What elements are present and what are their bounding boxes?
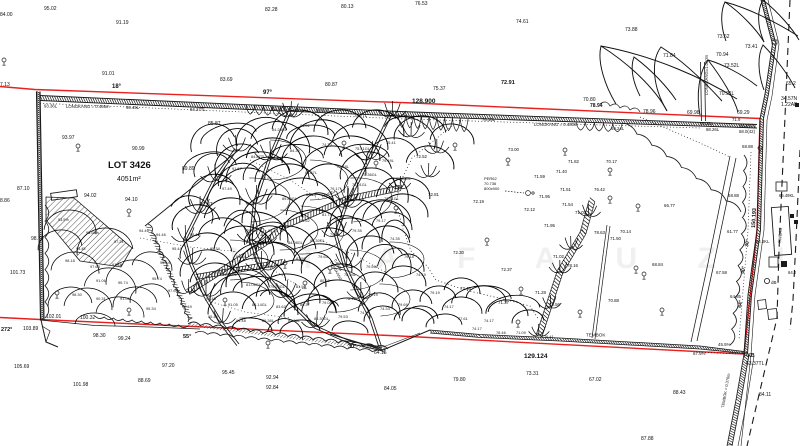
- svg-text:84.14GL: 84.14GL: [252, 302, 268, 307]
- svg-text:95.74: 95.74: [152, 276, 163, 281]
- svg-text:87.10: 87.10: [17, 186, 30, 192]
- svg-text:68.0(42): 68.0(42): [739, 129, 756, 134]
- svg-text:73.41: 73.41: [745, 44, 758, 50]
- svg-text:71.54: 71.54: [562, 202, 574, 207]
- svg-text:91.48: 91.48: [236, 318, 246, 323]
- svg-text:83.62: 83.62: [276, 304, 286, 309]
- svg-text:TEMBOK: TEMBOK: [586, 333, 606, 338]
- svg-text:74.61: 74.61: [516, 19, 529, 25]
- svg-text:79.48L: 79.48L: [337, 164, 350, 169]
- svg-text:82.97: 82.97: [262, 176, 272, 181]
- svg-text:67.58: 67.58: [716, 270, 728, 275]
- svg-text:71.40: 71.40: [556, 169, 568, 174]
- svg-text:79.19: 79.19: [430, 290, 440, 295]
- svg-text:74.45L: 74.45L: [262, 264, 275, 269]
- svg-text:80.13: 80.13: [341, 4, 354, 10]
- svg-text:91.06: 91.06: [96, 278, 106, 283]
- svg-text:68.26L: 68.26L: [700, 121, 713, 126]
- svg-text:88.43: 88.43: [673, 390, 686, 396]
- svg-text:78.96: 78.96: [643, 109, 656, 115]
- svg-text:97.49: 97.49: [222, 186, 232, 191]
- svg-text:71.84: 71.84: [663, 53, 676, 59]
- svg-text:84.08GL: 84.08GL: [288, 240, 304, 245]
- svg-text:93.5%: 93.5%: [58, 218, 69, 222]
- svg-text:75.41: 75.41: [386, 140, 396, 145]
- svg-text:70.94: 70.94: [716, 52, 729, 58]
- svg-text:72.81: 72.81: [428, 192, 440, 197]
- svg-text:84.11: 84.11: [759, 392, 771, 398]
- svg-text:SWBAS: SWBAS: [777, 227, 783, 243]
- svg-text:79.56L: 79.56L: [366, 264, 379, 269]
- svg-text:65.2: 65.2: [786, 81, 796, 87]
- svg-text:91.67: 91.67: [232, 166, 242, 171]
- svg-text:95.34: 95.34: [146, 306, 157, 311]
- svg-text:73.00: 73.00: [508, 147, 520, 152]
- svg-text:77.61: 77.61: [458, 316, 468, 321]
- svg-text:69.29: 69.29: [737, 110, 750, 116]
- svg-text:81.08GL: 81.08GL: [246, 282, 262, 287]
- svg-text:84.32: 84.32: [290, 148, 300, 153]
- svg-text:97.63: 97.63: [90, 264, 100, 269]
- svg-text:71.95: 71.95: [539, 194, 551, 199]
- svg-text:94.02: 94.02: [84, 193, 97, 199]
- svg-text:98.30: 98.30: [72, 292, 83, 297]
- svg-text:64.0: 64.0: [788, 270, 797, 275]
- svg-text:4051m²: 4051m²: [117, 176, 141, 183]
- svg-text:89.80GL: 89.80GL: [282, 196, 298, 201]
- svg-text:95.74: 95.74: [236, 254, 247, 259]
- svg-text:63.37TL: 63.37TL: [746, 361, 765, 367]
- svg-text:98.45L: 98.45L: [126, 105, 140, 110]
- svg-text:88.69: 88.69: [138, 378, 151, 384]
- svg-text:66.77: 66.77: [664, 203, 676, 208]
- svg-text:102.01: 102.01: [46, 314, 62, 320]
- svg-text:84.34GL: 84.34GL: [222, 272, 238, 277]
- svg-text:95.44: 95.44: [172, 246, 183, 251]
- svg-text:71.50: 71.50: [610, 236, 622, 241]
- svg-text:74.33: 74.33: [380, 306, 390, 311]
- svg-text:72.12: 72.12: [524, 207, 536, 212]
- svg-text:74.17: 74.17: [472, 326, 482, 331]
- svg-text:79.69: 79.69: [398, 302, 408, 307]
- svg-text:91.05: 91.05: [228, 302, 238, 307]
- svg-text:71.02: 71.02: [553, 254, 565, 259]
- svg-text:75.41GL: 75.41GL: [355, 146, 371, 151]
- svg-text:92.84: 92.84: [266, 385, 279, 391]
- svg-text:71.51: 71.51: [560, 187, 572, 192]
- svg-text:71.28: 71.28: [535, 290, 547, 295]
- svg-text:68.26L: 68.26L: [706, 127, 720, 132]
- svg-text:84.02: 84.02: [300, 123, 310, 128]
- svg-text:79.80: 79.80: [453, 377, 466, 383]
- svg-text:72.52: 72.52: [416, 154, 428, 159]
- svg-text:78.16: 78.16: [567, 263, 579, 268]
- svg-text:101.73: 101.73: [10, 270, 26, 276]
- svg-text:84.62: 84.62: [300, 218, 310, 223]
- svg-text:68.88: 68.88: [728, 193, 740, 198]
- svg-text:84.00: 84.00: [0, 12, 13, 18]
- svg-text:95.02: 95.02: [44, 6, 57, 12]
- svg-text:76.42: 76.42: [594, 187, 606, 192]
- svg-text:79.56GL: 79.56GL: [270, 284, 286, 289]
- svg-text:150.193: 150.193: [751, 208, 758, 228]
- svg-text:64.2KL: 64.2KL: [756, 239, 770, 244]
- svg-text:94.46: 94.46: [156, 232, 166, 237]
- svg-text:79.45: 79.45: [246, 228, 256, 233]
- svg-text:79.56: 79.56: [549, 302, 561, 307]
- svg-text:67.5%: 67.5%: [693, 351, 706, 356]
- svg-text:95.34: 95.34: [210, 246, 221, 251]
- svg-text:45.5%: 45.5%: [718, 342, 731, 347]
- svg-text:7.13: 7.13: [0, 82, 10, 88]
- svg-text:74.17: 74.17: [444, 304, 454, 309]
- svg-text:91.19: 91.19: [116, 20, 129, 26]
- svg-text:18°: 18°: [112, 84, 122, 90]
- svg-text:64.15: 64.15: [374, 350, 387, 356]
- svg-text:87.88: 87.88: [641, 436, 654, 442]
- svg-text:81.50: 81.50: [296, 284, 307, 289]
- svg-text:79.65: 79.65: [318, 254, 328, 259]
- svg-text:70.88: 70.88: [608, 298, 620, 303]
- svg-text:76.41: 76.41: [544, 334, 554, 339]
- svg-text:78.46: 78.46: [496, 330, 506, 335]
- svg-text:75.37: 75.37: [433, 86, 446, 92]
- svg-text:94.10: 94.10: [125, 197, 138, 203]
- svg-text:79.18: 79.18: [404, 254, 414, 259]
- svg-text:89.89: 89.89: [182, 166, 195, 172]
- svg-text:84.26GL: 84.26GL: [272, 127, 288, 132]
- svg-text:103.89: 103.89: [23, 326, 39, 332]
- svg-text:72.91: 72.91: [501, 80, 515, 86]
- svg-text:800x900: 800x900: [484, 186, 500, 191]
- svg-text:97.20: 97.20: [162, 363, 175, 369]
- svg-text:69.98: 69.98: [687, 110, 700, 116]
- svg-text:64.85: 64.85: [730, 294, 742, 299]
- svg-text:68.2(B): 68.2(B): [739, 123, 754, 128]
- svg-text:55°: 55°: [183, 334, 191, 340]
- svg-text:84.05: 84.05: [384, 386, 397, 392]
- svg-text:272°: 272°: [1, 327, 12, 333]
- svg-text:78.63: 78.63: [594, 230, 606, 235]
- svg-text:79.19: 79.19: [368, 292, 378, 297]
- svg-text:71.09: 71.09: [516, 330, 526, 335]
- svg-text:72.30: 72.30: [453, 250, 465, 255]
- svg-text:80.87: 80.87: [325, 82, 338, 88]
- svg-text:94.46: 94.46: [139, 228, 149, 233]
- svg-text:90.99: 90.99: [132, 146, 145, 152]
- svg-text:74.35: 74.35: [330, 232, 340, 237]
- svg-text:92.87: 92.87: [200, 202, 213, 208]
- svg-text:78.94L: 78.94L: [344, 272, 357, 277]
- svg-text:73.31: 73.31: [526, 371, 539, 377]
- svg-text:67.02: 67.02: [589, 377, 602, 383]
- svg-text:80.93L: 80.93L: [316, 108, 330, 113]
- svg-text:84.85: 84.85: [306, 192, 316, 197]
- svg-text:71.95: 71.95: [544, 223, 556, 228]
- svg-text:93.97: 93.97: [62, 135, 75, 141]
- svg-text:LONGKANG = 0.480m: LONGKANG = 0.480m: [534, 122, 578, 127]
- svg-text:79.53: 79.53: [338, 314, 348, 319]
- svg-text:74.70: 74.70: [322, 142, 333, 147]
- svg-text:65.49KL: 65.49KL: [779, 193, 795, 198]
- svg-text:71.59: 71.59: [534, 174, 546, 179]
- svg-text:97.49: 97.49: [182, 304, 192, 309]
- svg-text:98.79: 98.79: [31, 236, 44, 242]
- svg-text:74.17: 74.17: [484, 318, 494, 323]
- svg-text:79.35: 79.35: [352, 228, 362, 233]
- svg-text:91.01: 91.01: [102, 71, 115, 77]
- svg-text:74.19: 74.19: [360, 310, 370, 315]
- svg-text:76.53: 76.53: [415, 1, 428, 7]
- svg-text:98.18: 98.18: [65, 258, 75, 263]
- svg-text:83.69: 83.69: [220, 77, 233, 83]
- svg-text:71.37: 71.37: [498, 300, 510, 305]
- svg-text:95.44: 95.44: [160, 260, 171, 265]
- svg-text:79.17: 79.17: [330, 186, 340, 191]
- svg-text:83.30GL: 83.30GL: [310, 238, 326, 243]
- svg-text:61.77: 61.77: [727, 229, 739, 234]
- svg-text:82.28: 82.28: [265, 7, 278, 13]
- svg-text:68.88: 68.88: [742, 144, 754, 149]
- svg-text:8.86: 8.86: [0, 198, 10, 204]
- svg-text:75.36GL: 75.36GL: [396, 176, 412, 181]
- svg-text:81.74: 81.74: [322, 212, 333, 217]
- svg-text:71.05: 71.05: [575, 210, 587, 215]
- svg-text:71.9: 71.9: [732, 117, 741, 122]
- svg-text:73.52L: 73.52L: [724, 63, 740, 69]
- svg-text:91.48: 91.48: [112, 262, 122, 267]
- svg-text:89.36L: 89.36L: [262, 318, 275, 323]
- svg-text:78.94: 78.94: [590, 103, 603, 109]
- svg-text:83.30GL: 83.30GL: [314, 316, 330, 321]
- svg-text:128.900: 128.900: [412, 98, 436, 105]
- svg-text:95.45: 95.45: [222, 370, 235, 376]
- svg-text:97.24: 97.24: [114, 240, 124, 244]
- svg-text:93.44: 93.44: [268, 228, 279, 233]
- svg-text:72.48: 72.48: [460, 286, 472, 291]
- svg-text:90.31: 90.31: [96, 296, 106, 301]
- svg-text:101.98: 101.98: [73, 382, 89, 388]
- svg-text:78.01GL: 78.01GL: [352, 182, 368, 187]
- svg-text:1.22AB: 1.22AB: [781, 102, 798, 108]
- svg-text:95.34: 95.34: [246, 201, 257, 206]
- svg-text:81.50: 81.50: [296, 256, 307, 261]
- svg-text:dB: dB: [771, 280, 777, 285]
- svg-text:97.69: 97.69: [168, 288, 178, 293]
- svg-text:72.37: 72.37: [501, 267, 513, 272]
- svg-text:91.06: 91.06: [120, 296, 130, 301]
- svg-text:80.62: 80.62: [320, 278, 330, 283]
- svg-text:68.84: 68.84: [652, 262, 664, 267]
- svg-text:95.45: 95.45: [208, 314, 218, 319]
- svg-text:98.30: 98.30: [93, 333, 106, 339]
- svg-text:79.08: 79.08: [322, 300, 332, 305]
- svg-text:95.74: 95.74: [118, 280, 129, 285]
- svg-text:74.35: 74.35: [390, 236, 400, 241]
- svg-text:70.17: 70.17: [606, 159, 618, 164]
- svg-text:79.17: 79.17: [376, 218, 386, 223]
- svg-text:LONGKANG = 0.465m: LONGKANG = 0.465m: [66, 104, 110, 109]
- svg-text:75.36GL: 75.36GL: [362, 172, 378, 177]
- svg-text:97°: 97°: [263, 90, 273, 96]
- svg-text:71.82: 71.82: [568, 159, 580, 164]
- svg-text:92.94: 92.94: [266, 375, 279, 381]
- svg-text:76.16L: 76.16L: [482, 117, 496, 122]
- svg-text:84.87TL: 84.87TL: [251, 154, 266, 159]
- svg-text:LOT 3426: LOT 3426: [108, 160, 151, 171]
- svg-text:84.27TL: 84.27TL: [190, 107, 206, 112]
- svg-text:105.69: 105.69: [14, 364, 30, 370]
- svg-text:30°: 30°: [348, 344, 356, 350]
- svg-text:129.124: 129.124: [524, 353, 548, 360]
- svg-text:85.87: 85.87: [208, 121, 221, 127]
- svg-text:80.37: 80.37: [300, 302, 310, 307]
- svg-text:98.18: 98.18: [190, 232, 200, 237]
- svg-text:79.49L: 79.49L: [382, 158, 395, 163]
- svg-text:78.16: 78.16: [346, 296, 356, 301]
- svg-text:69.24L: 69.24L: [611, 126, 625, 131]
- svg-text:74.19: 74.19: [416, 272, 426, 277]
- svg-text:93.45: 93.45: [206, 296, 216, 301]
- svg-text:99.24: 99.24: [118, 336, 131, 342]
- svg-text:79.77L: 79.77L: [354, 113, 368, 118]
- svg-text:PKB: PKB: [744, 353, 755, 359]
- svg-text:73.62: 73.62: [717, 34, 730, 40]
- svg-text:84.87L: 84.87L: [305, 170, 318, 175]
- svg-text:84.36L: 84.36L: [288, 318, 301, 323]
- svg-text:70.14: 70.14: [620, 229, 632, 234]
- svg-text:93.36L: 93.36L: [44, 104, 58, 109]
- svg-text:82.57TL: 82.57TL: [272, 106, 288, 111]
- svg-text:72.19: 72.19: [473, 199, 485, 204]
- svg-text:73.88: 73.88: [625, 27, 638, 33]
- svg-text:78.81GL: 78.81GL: [384, 196, 400, 201]
- svg-text:70.91L: 70.91L: [719, 91, 735, 97]
- svg-text:100.32: 100.32: [80, 315, 96, 321]
